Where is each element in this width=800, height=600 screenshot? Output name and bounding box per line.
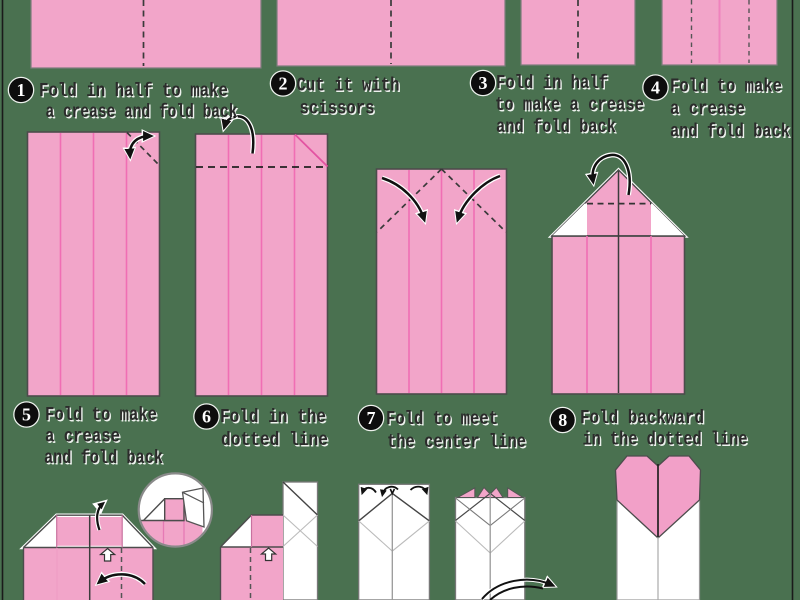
svg-text:Fold to meet: Fold to meet [386, 408, 498, 430]
svg-text:a crease and fold back: a crease and fold back [46, 101, 238, 123]
svg-text:2: 2 [279, 74, 288, 94]
svg-text:dotted line: dotted line [221, 429, 328, 451]
svg-text:3: 3 [479, 73, 488, 93]
svg-text:and fold back: and fold back [496, 116, 616, 138]
svg-text:6: 6 [202, 407, 211, 427]
svg-text:to make a crease: to make a crease [495, 94, 644, 116]
svg-text:5: 5 [22, 405, 31, 425]
svg-text:and fold back: and fold back [670, 121, 790, 143]
svg-text:a crease: a crease [45, 426, 120, 448]
svg-text:4: 4 [651, 78, 660, 98]
svg-text:the center line: the center line [387, 431, 526, 453]
svg-text:8: 8 [558, 410, 567, 430]
svg-text:7: 7 [367, 408, 376, 428]
svg-text:Fold to make: Fold to make [670, 76, 782, 98]
svg-text:Fold in the: Fold in the [220, 406, 326, 428]
svg-text:scissors: scissors [300, 98, 375, 120]
svg-text:Fold in half: Fold in half [496, 72, 608, 94]
svg-text:Fold in half to make: Fold in half to make [39, 80, 228, 102]
svg-text:Cut it with: Cut it with [297, 75, 400, 97]
svg-text:and fold back: and fold back [44, 447, 163, 469]
svg-text:1: 1 [17, 80, 26, 100]
svg-text:Fold backward: Fold backward [580, 407, 704, 429]
svg-text:in the dotted line: in the dotted line [583, 429, 748, 451]
svg-text:Fold to make: Fold to make [45, 404, 157, 426]
svg-text:a crease: a crease [670, 98, 745, 120]
